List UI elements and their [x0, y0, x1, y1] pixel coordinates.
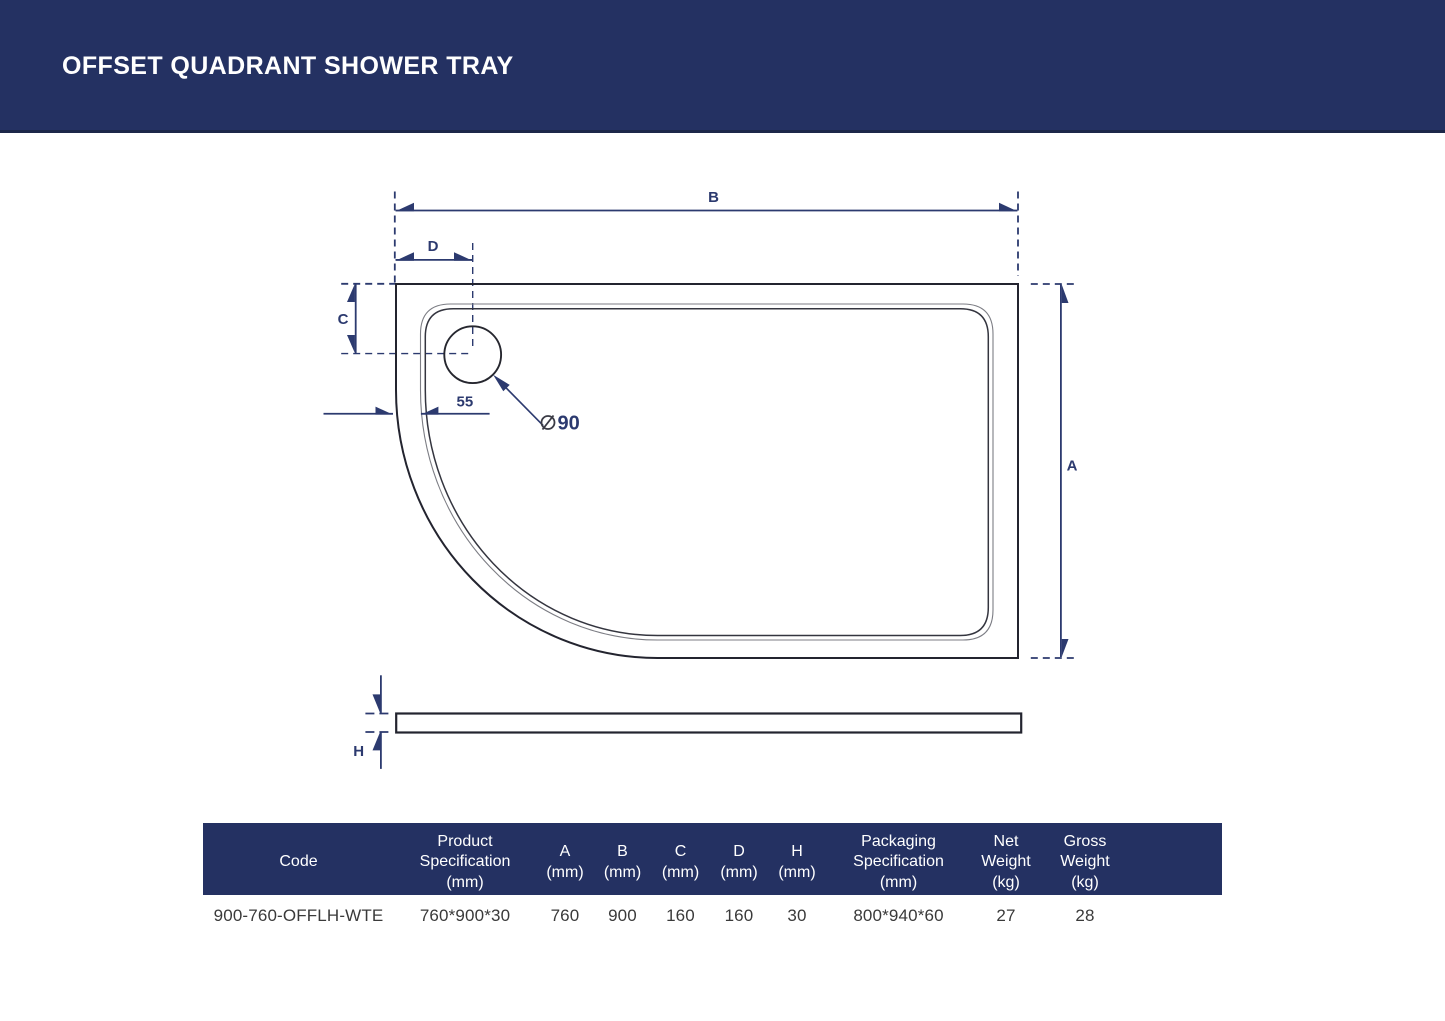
svg-text:A: A — [1067, 458, 1078, 475]
svg-text:90: 90 — [558, 413, 580, 435]
svg-text:H: H — [353, 743, 364, 760]
svg-text:55: 55 — [457, 394, 474, 411]
svg-text:C: C — [338, 311, 349, 328]
svg-text:D: D — [428, 238, 439, 255]
svg-text:B: B — [708, 189, 719, 206]
